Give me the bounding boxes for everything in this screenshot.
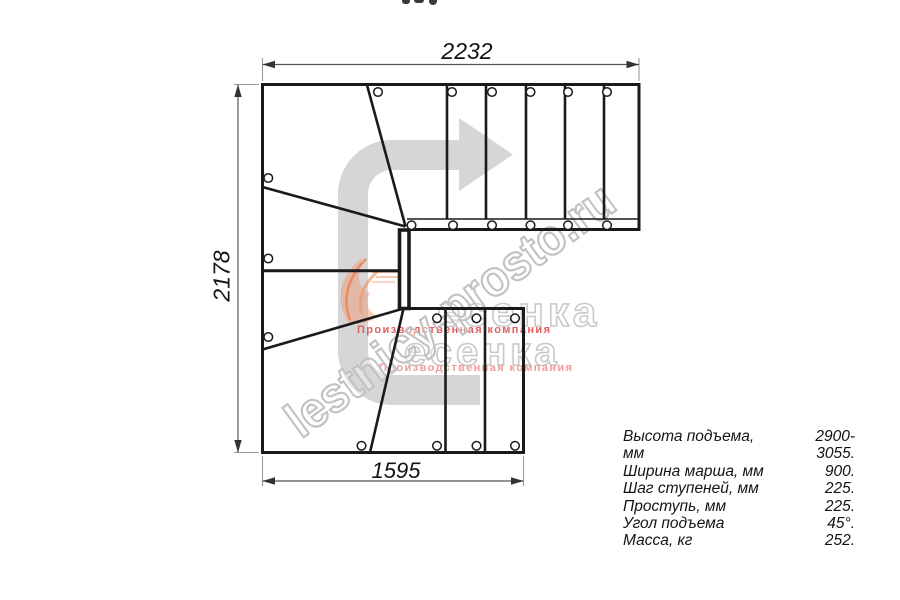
staircase-drawing-page: { "drawing": { "dim_top": "2232", "dim_l…	[0, 0, 900, 600]
watermark-layer: есенка Производственная компания есенка …	[0, 0, 900, 600]
